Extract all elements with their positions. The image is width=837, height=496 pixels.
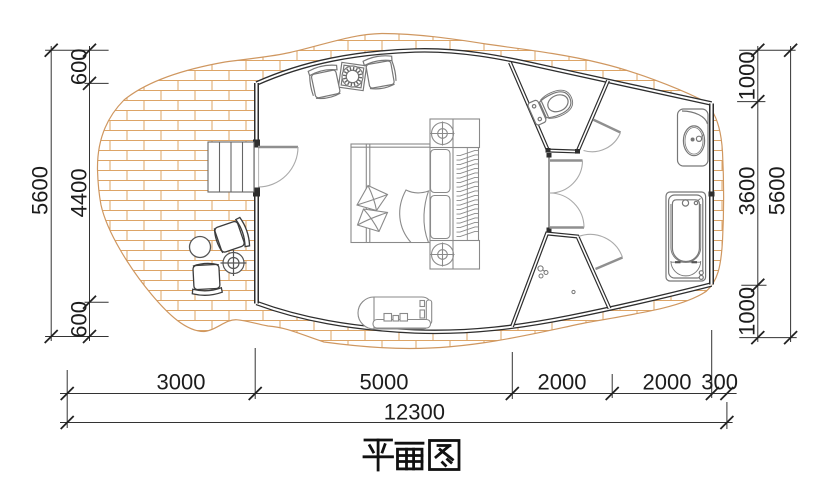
svg-text:3000: 3000 [157,370,206,395]
svg-text:3600: 3600 [735,167,760,216]
svg-text:4400: 4400 [67,168,92,217]
svg-text:1000: 1000 [735,287,760,336]
svg-text:2000: 2000 [538,370,587,395]
svg-text:600: 600 [67,48,92,85]
svg-text:5000: 5000 [360,370,409,395]
svg-text:600: 600 [67,301,92,338]
svg-text:2000: 2000 [643,370,692,395]
svg-text:300: 300 [701,370,738,395]
svg-text:1000: 1000 [735,51,760,100]
svg-text:5600: 5600 [27,166,52,215]
svg-text:12300: 12300 [384,400,445,425]
svg-text:5600: 5600 [765,166,790,215]
